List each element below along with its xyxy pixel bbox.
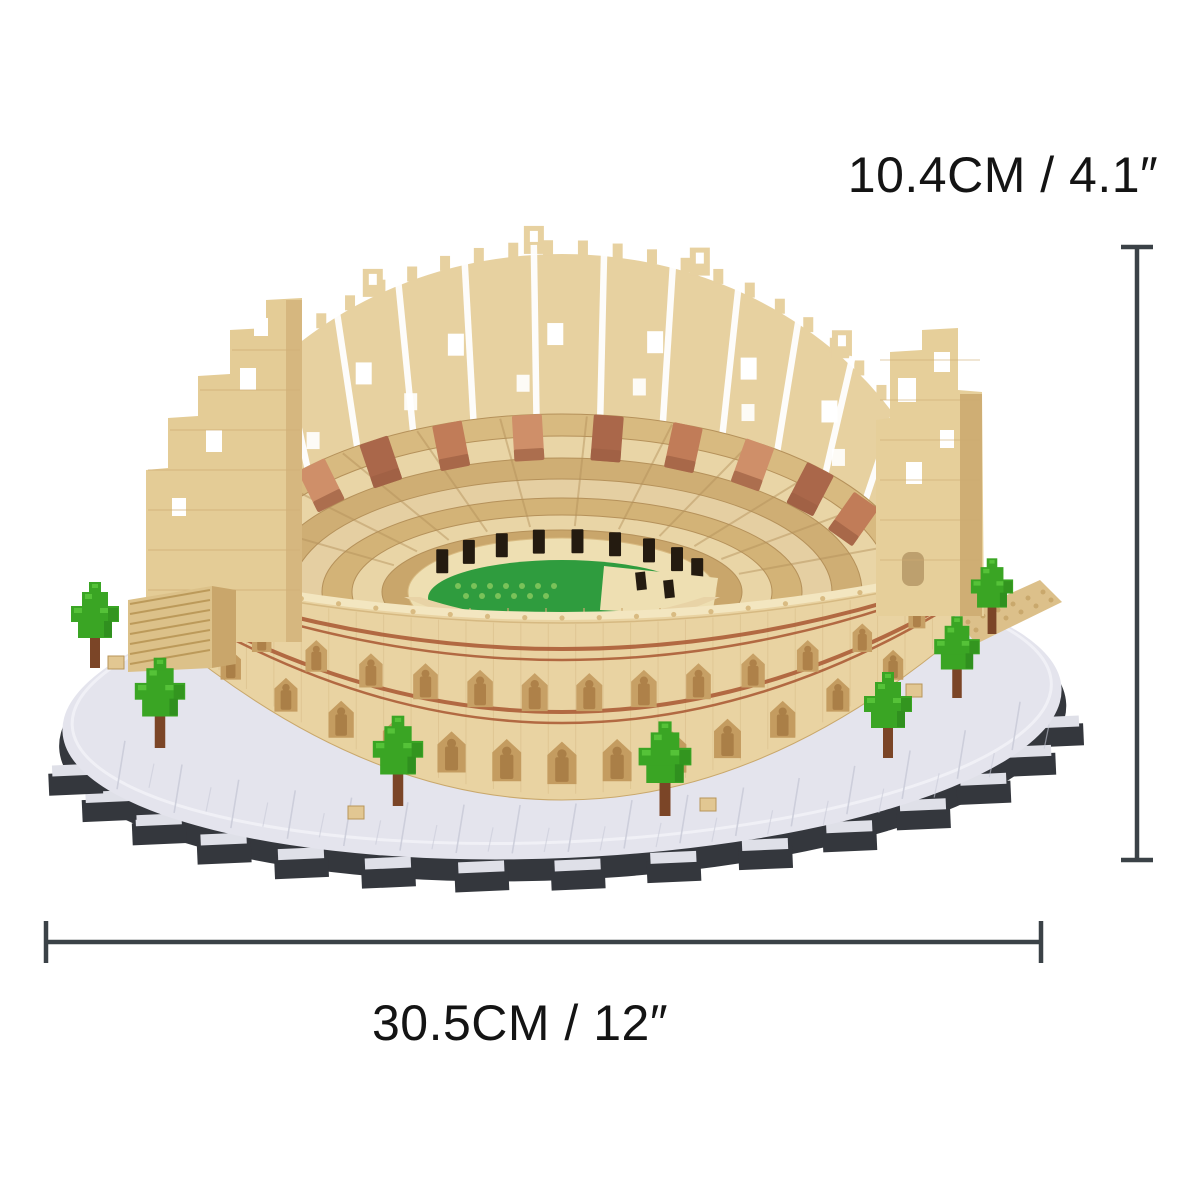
arch-statue xyxy=(858,634,867,651)
front-wall-rim-stud xyxy=(448,612,453,617)
platform-stud xyxy=(966,620,971,625)
podium-doorway xyxy=(496,533,508,557)
podium-doorway xyxy=(635,572,647,591)
arch-statue-head xyxy=(834,684,841,691)
podium-doorway xyxy=(671,547,683,571)
back-wall-crenel xyxy=(681,258,691,273)
back-wall-tower-window xyxy=(838,335,846,346)
arena-stud xyxy=(543,593,549,599)
platform-stud xyxy=(1011,602,1016,607)
back-wall-gap xyxy=(534,245,537,425)
terracotta-brick-shade xyxy=(590,448,621,462)
arena-stud xyxy=(527,593,533,599)
height-dimension-label: 10.4CM / 4.1″ xyxy=(848,147,1158,203)
front-wall-rim-stud xyxy=(783,601,788,606)
podium-doorway xyxy=(609,532,621,556)
arch-statue-head xyxy=(502,747,511,756)
back-wall-crenel xyxy=(407,267,417,282)
arch-statue-head xyxy=(531,680,539,688)
right-ruin-window xyxy=(934,352,950,372)
base-step-top xyxy=(554,858,600,871)
arch-statue-head xyxy=(695,670,703,678)
arch-statue xyxy=(748,666,759,686)
arch-statue xyxy=(610,755,623,779)
stairs-side-wall xyxy=(212,586,236,668)
podium-doorway xyxy=(533,530,545,554)
arch-statue-head xyxy=(585,680,593,688)
back-wall-gap xyxy=(600,246,604,425)
front-wall-rim-stud xyxy=(485,614,490,619)
back-wall-crenel xyxy=(876,385,886,400)
colosseum-product-svg: 10.4CM / 4.1″ 30.5CM / 12″ xyxy=(0,0,1200,1200)
left-ruin-window xyxy=(240,368,256,390)
back-wall-crenel xyxy=(647,249,657,264)
podium-doorway xyxy=(436,549,448,573)
podium-doorway xyxy=(663,580,675,599)
back-wall-tower-window xyxy=(696,253,704,264)
arch-statue-head xyxy=(779,707,787,715)
right-ruin-arch xyxy=(902,552,924,586)
stairs-slab xyxy=(128,586,212,672)
arena-stud xyxy=(519,583,525,589)
front-wall-rim-stud xyxy=(671,612,676,617)
arch-statue xyxy=(803,652,813,670)
back-wall-tower-window xyxy=(369,274,377,285)
arch-statue xyxy=(474,684,486,706)
arena-stud xyxy=(455,583,461,589)
podium-doorway xyxy=(463,540,475,564)
arch-statue-head xyxy=(313,646,320,653)
back-wall-crenel xyxy=(316,313,326,328)
back-wall-window xyxy=(647,331,663,353)
back-wall-crenel xyxy=(613,244,623,259)
left-ruin-window xyxy=(206,430,222,452)
base-step-top xyxy=(365,857,411,870)
arch-statue xyxy=(420,677,431,698)
platform-stud xyxy=(974,628,979,633)
arch-statue xyxy=(529,687,541,709)
back-wall-window xyxy=(448,334,464,356)
terracotta-block xyxy=(512,414,545,462)
arch-statue xyxy=(777,714,789,735)
arch-statue-head xyxy=(890,655,897,662)
right-ruin-window xyxy=(898,378,916,402)
bench-block xyxy=(108,656,124,669)
back-wall-window xyxy=(742,404,755,421)
bench-block xyxy=(906,684,922,697)
left-ruin-shade xyxy=(286,300,302,642)
arena-stud xyxy=(503,583,509,589)
arch-statue-head xyxy=(749,659,757,667)
arch-statue xyxy=(555,757,568,782)
arch-statue-head xyxy=(476,677,484,685)
back-wall-window xyxy=(633,378,646,395)
platform-stud xyxy=(1034,604,1039,609)
arena-stud xyxy=(487,583,493,589)
front-wall-rim-stud xyxy=(857,590,862,595)
back-wall-window xyxy=(356,362,372,384)
arch-statue-head xyxy=(804,646,811,653)
back-wall-window xyxy=(821,400,837,422)
right-ruin-window xyxy=(940,430,954,448)
left-entrance-stairs xyxy=(128,586,236,672)
arch-statue-head xyxy=(723,726,732,735)
arch-statue-head xyxy=(282,684,289,691)
back-wall-crenel xyxy=(713,269,723,284)
arch-statue xyxy=(445,747,458,771)
arena-stud xyxy=(495,593,501,599)
bench-block xyxy=(348,806,364,819)
arch-statue-head xyxy=(612,747,621,756)
front-wall-rim-stud xyxy=(634,614,639,619)
base-step-top xyxy=(650,851,696,864)
arena-stud xyxy=(535,583,541,589)
product-image: 10.4CM / 4.1″ 30.5CM / 12″ xyxy=(0,0,1200,1200)
arch-statue xyxy=(638,684,650,706)
platform-stud xyxy=(1041,590,1046,595)
front-wall-rim-stud xyxy=(597,615,602,620)
back-wall-crenel xyxy=(508,243,518,258)
back-wall-window xyxy=(741,358,757,380)
arch-statue xyxy=(311,652,321,670)
base-step-top xyxy=(278,847,324,860)
arch-statue-head xyxy=(337,707,345,715)
platform-stud xyxy=(1004,616,1009,621)
back-wall-crenel xyxy=(854,360,864,375)
arch-statue xyxy=(335,714,347,735)
arch-statue-head xyxy=(640,677,648,685)
platform-stud xyxy=(1019,610,1024,615)
back-wall-crenel xyxy=(543,240,553,255)
arena-stud xyxy=(471,583,477,589)
back-wall-crenel xyxy=(440,256,450,271)
back-wall-crenel xyxy=(775,299,785,314)
arch-statue xyxy=(366,666,377,686)
front-wall-rim-stud xyxy=(820,596,825,601)
back-wall-window xyxy=(307,432,320,449)
back-wall-crenel xyxy=(803,317,813,332)
arena-stud xyxy=(479,593,485,599)
arch-statue-head xyxy=(447,739,456,748)
arch-statue-head xyxy=(859,629,865,635)
front-wall-rim-stud xyxy=(522,615,527,620)
front-wall-rim-stud xyxy=(746,605,751,610)
base-step-top xyxy=(458,860,504,873)
left-ruin-window xyxy=(172,498,186,516)
front-wall-rim-stud xyxy=(559,615,564,620)
podium-doorway xyxy=(571,529,583,553)
back-wall-window xyxy=(832,449,845,466)
bench-block xyxy=(700,798,716,811)
front-wall-rim-stud xyxy=(336,601,341,606)
arch-statue xyxy=(721,733,733,756)
terracotta-brick-shade xyxy=(514,448,545,462)
arena-stud xyxy=(511,593,517,599)
platform-stud xyxy=(1049,598,1054,603)
arch-statue xyxy=(500,755,513,779)
back-wall-crenel xyxy=(474,248,484,263)
arch-statue xyxy=(833,690,844,710)
terracotta-block xyxy=(590,414,623,462)
arch-statue xyxy=(281,690,292,710)
right-ruin-window xyxy=(906,462,922,484)
front-wall-rim-stud xyxy=(410,609,415,614)
back-wall-window xyxy=(547,323,563,345)
front-wall-rim-stud xyxy=(373,605,378,610)
arena-stud xyxy=(551,583,557,589)
base-step-top xyxy=(742,838,788,851)
arena-stud xyxy=(463,593,469,599)
arch-statue-head xyxy=(367,659,375,667)
back-wall-crenel xyxy=(578,240,588,255)
back-wall-crenel xyxy=(745,283,755,298)
back-wall-window xyxy=(404,393,417,410)
back-wall-crenel xyxy=(345,295,355,310)
arch-statue-head xyxy=(557,749,566,758)
platform-stud xyxy=(1026,596,1031,601)
left-ruin-window xyxy=(254,318,268,336)
back-wall-window xyxy=(517,375,530,392)
arch-statue xyxy=(583,687,595,709)
back-wall-tower-window xyxy=(530,231,538,242)
front-wall-rim-stud xyxy=(708,609,713,614)
arch-statue-head xyxy=(422,670,430,678)
width-dimension-label: 30.5CM / 12″ xyxy=(372,995,668,1051)
arch-statue xyxy=(693,677,704,698)
podium-doorway xyxy=(643,538,655,562)
